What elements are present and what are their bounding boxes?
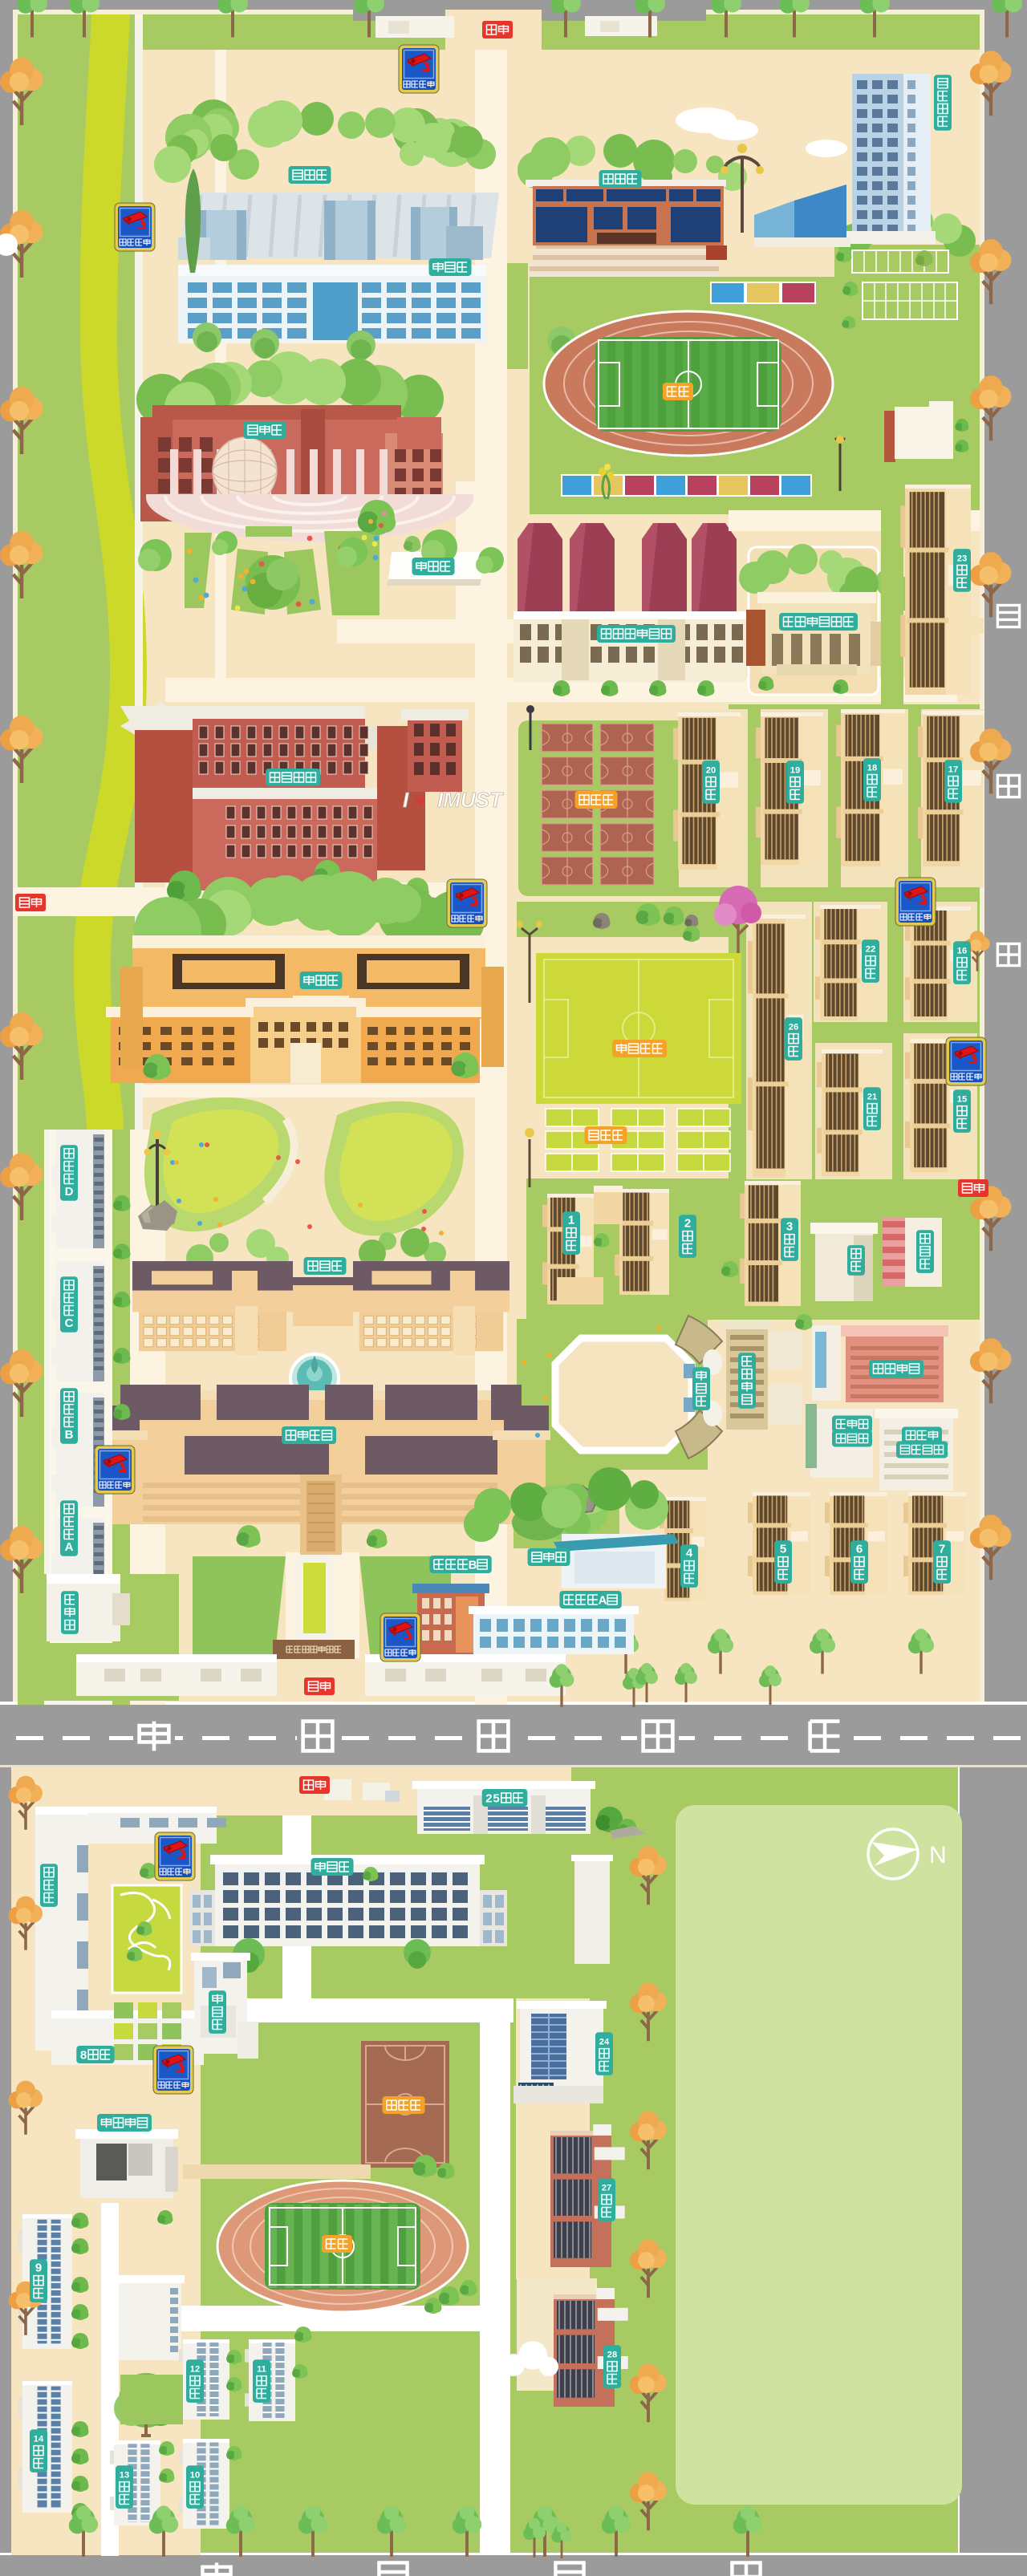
svg-text:10: 10 (190, 2471, 200, 2481)
svg-text:4: 4 (686, 1547, 693, 1560)
svg-text:8: 8 (80, 2048, 87, 2062)
svg-text:2: 2 (485, 1791, 492, 1805)
svg-text:6: 6 (856, 1543, 863, 1556)
svg-text:28: 28 (607, 2351, 617, 2360)
svg-text:27: 27 (602, 2184, 611, 2193)
svg-text:2: 2 (684, 1217, 691, 1231)
svg-text:A: A (599, 1593, 607, 1607)
svg-text:5: 5 (493, 1791, 499, 1805)
svg-text:14: 14 (34, 2435, 44, 2444)
svg-text:7: 7 (939, 1543, 945, 1556)
svg-text:B: B (469, 1558, 477, 1572)
svg-text:N: N (929, 1842, 947, 1868)
svg-text:11: 11 (257, 2365, 266, 2375)
svg-text:15: 15 (957, 1095, 967, 1105)
svg-text:12: 12 (190, 2365, 200, 2375)
svg-text:22: 22 (866, 945, 875, 955)
svg-text:1: 1 (568, 1214, 574, 1227)
svg-text:I: I (403, 788, 409, 812)
svg-text:B: B (65, 1428, 74, 1442)
svg-text:♥: ♥ (415, 790, 426, 812)
svg-text:C: C (65, 1316, 74, 1330)
svg-text:18: 18 (867, 763, 877, 773)
svg-text:23: 23 (957, 554, 967, 563)
svg-text:20: 20 (706, 765, 716, 775)
svg-text:IMUST: IMUST (437, 788, 504, 812)
svg-text:24: 24 (599, 2038, 610, 2047)
svg-text:3: 3 (786, 1220, 793, 1234)
svg-text:A: A (65, 1540, 74, 1554)
svg-text:19: 19 (790, 765, 800, 775)
svg-text:16: 16 (957, 947, 967, 956)
svg-text:9: 9 (35, 2262, 42, 2275)
svg-text:5: 5 (780, 1543, 786, 1556)
svg-text:D: D (65, 1185, 74, 1199)
svg-text:21: 21 (867, 1093, 877, 1102)
svg-text:26: 26 (789, 1023, 798, 1032)
svg-text:13: 13 (120, 2471, 129, 2481)
svg-text:17: 17 (948, 765, 958, 774)
